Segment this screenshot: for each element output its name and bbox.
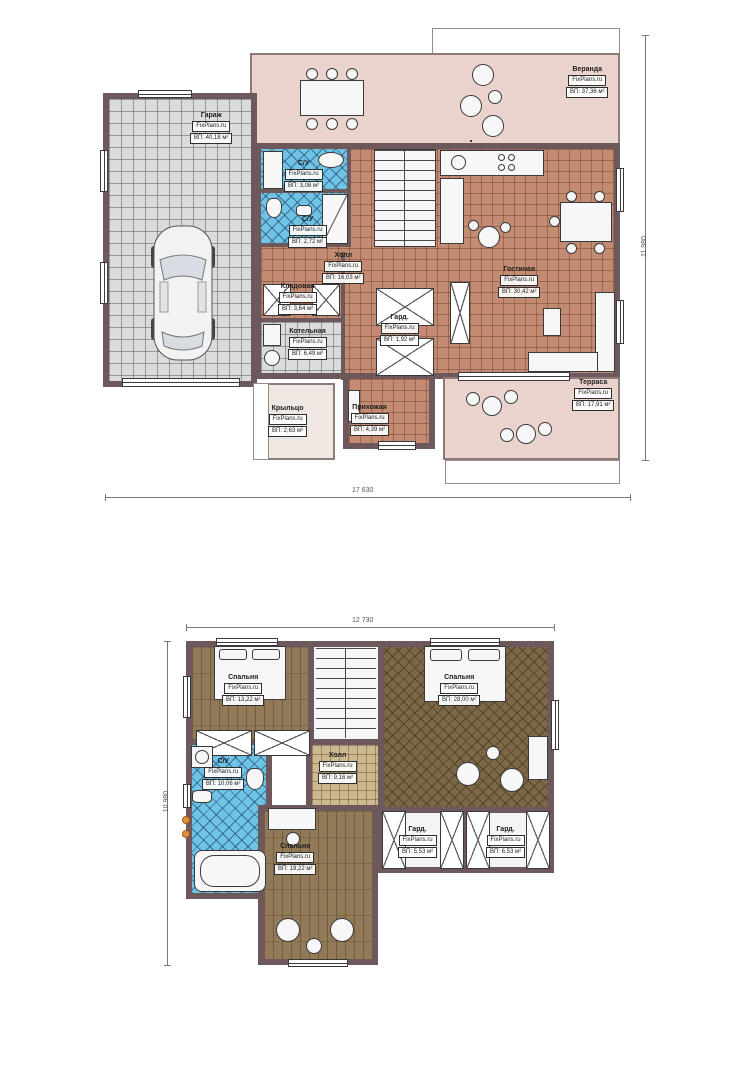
stairs-rail — [345, 648, 346, 738]
room-title: С/У — [302, 216, 313, 224]
lounge-chair-icon — [472, 64, 494, 86]
label-su-f2: С/У FixPlans.ru ВП: 10,06 м² — [202, 758, 244, 790]
brand-watermark: FixPlans.ru — [351, 413, 389, 424]
brand-watermark: FixPlans.ru — [487, 835, 525, 846]
dimension-tick — [186, 624, 187, 631]
chair-icon — [326, 68, 338, 80]
chair-icon — [538, 422, 552, 436]
wardrobe — [440, 811, 464, 869]
room-title: Спальня — [228, 674, 258, 682]
room-area: ВП: 16,03 м² — [322, 273, 364, 284]
stove-burner-icon — [498, 154, 505, 161]
armchair-icon — [330, 918, 354, 942]
brand-watermark: FixPlans.ru — [276, 852, 314, 863]
car-icon — [146, 222, 220, 364]
kitchen-sink-icon — [451, 155, 466, 170]
stove-burner-icon — [498, 164, 505, 171]
label-gard2-f2: Гард. FixPlans.ru ВП: 6,53 м² — [486, 826, 525, 858]
dimension-value-height-f2: 10 980 — [163, 791, 170, 812]
chair-icon — [594, 243, 605, 254]
label-prihozhaya: Прихожая FixPlans.ru ВП: 4,39 м² — [350, 404, 389, 436]
lounge-chair-icon — [460, 95, 482, 117]
pillow-icon — [252, 649, 280, 660]
pillow-icon — [468, 649, 500, 661]
dimension-tick — [164, 641, 171, 642]
dimension-tick — [554, 624, 555, 631]
room-title: Холл — [329, 752, 347, 760]
room-title: Крыльцо — [272, 405, 304, 413]
bedroom3-window-bottom — [288, 959, 348, 967]
room-title: Кладовая — [281, 283, 315, 291]
terrace-table — [482, 396, 502, 416]
veranda-glazed-door — [470, 140, 472, 142]
porch-steps — [253, 383, 269, 460]
label-gard1-f2: Гард. FixPlans.ru ВП: 5,53 м² — [398, 826, 437, 858]
bedroom1-window-left — [183, 676, 191, 718]
dimension-tick — [642, 35, 649, 36]
side-table — [306, 938, 322, 954]
room-area: ВП: 10,06 м² — [202, 779, 244, 790]
room-title: Прихожая — [352, 404, 387, 412]
brand-watermark: FixPlans.ru — [224, 683, 262, 694]
room-area: ВП: 6,49 м² — [288, 349, 327, 360]
room-area: ВП: 6,53 м² — [486, 847, 525, 858]
dimension-value-width-f1: 17 630 — [352, 487, 373, 494]
label-bedroom3: Спальня FixPlans.ru ВП: 19,22 м² — [274, 843, 316, 875]
label-hall-f2: Холл FixPlans.ru ВП: 9,16 м² — [318, 752, 357, 784]
coffee-table — [543, 308, 561, 336]
label-kryltso: Крыльцо FixPlans.ru ВП: 2,63 м² — [268, 405, 307, 437]
toilet-icon — [266, 198, 282, 218]
room-area: ВП: 30,42 м² — [498, 287, 540, 298]
room-title: Гостиная — [503, 266, 535, 274]
room-area: ВП: 13,22 м² — [222, 695, 264, 706]
chair-icon — [306, 68, 318, 80]
garage-door — [122, 378, 240, 387]
armchair-icon — [276, 918, 300, 942]
room-area: ВП: 28,00 м² — [438, 695, 480, 706]
room-area: ВП: 2,72 м² — [288, 237, 327, 248]
veranda-table — [300, 80, 364, 116]
brand-watermark: FixPlans.ru — [285, 169, 323, 180]
room-area: ВП: 2,63 м² — [268, 426, 307, 437]
pillow-icon — [219, 649, 247, 660]
armchair-icon — [500, 768, 524, 792]
fridge-icon — [440, 178, 464, 244]
chair-icon — [566, 243, 577, 254]
room-title: С/У — [298, 160, 309, 168]
room-title: Гард. — [408, 826, 426, 834]
brand-watermark: FixPlans.ru — [568, 75, 606, 86]
dimension-tick — [630, 494, 631, 501]
room-title: Гараж — [201, 112, 222, 120]
pillow-icon — [430, 649, 462, 661]
room-area: ВП: 5,53 м² — [398, 847, 437, 858]
lounge-chair-icon — [482, 115, 504, 137]
label-terrasa: Терраса FixPlans.ru ВП: 17,91 м² — [572, 379, 614, 411]
stairs — [374, 149, 436, 247]
dimension-value-height-f1: 11 980 — [641, 236, 648, 257]
garage-window-left-1 — [100, 150, 108, 192]
terrace-steps — [445, 460, 620, 484]
room-title: Спальня — [280, 843, 310, 851]
label-bedroom1: Спальня FixPlans.ru ВП: 13,22 м² — [222, 674, 264, 706]
dimension-line-width-f2 — [186, 627, 554, 628]
room-area: ВП: 37,36 м² — [566, 87, 608, 98]
chair-icon — [500, 222, 511, 233]
brand-watermark: FixPlans.ru — [574, 388, 612, 399]
brand-watermark: FixPlans.ru — [500, 275, 538, 286]
garage-window-left-2 — [100, 262, 108, 304]
chair-icon — [306, 118, 318, 130]
entry-door — [378, 441, 416, 450]
living-window-right-2 — [616, 300, 624, 344]
room-title: С/У — [218, 758, 229, 766]
label-gostinaya: Гостиная FixPlans.ru ВП: 30,42 м² — [498, 266, 540, 298]
desk — [268, 808, 316, 830]
brand-watermark: FixPlans.ru — [399, 835, 437, 846]
room-title: Холл — [334, 252, 352, 260]
chair-icon — [346, 118, 358, 130]
floor1-plan: Веранда FixPlans.ru ВП: 37,36 м² Гараж F… — [0, 0, 736, 540]
brand-watermark: FixPlans.ru — [204, 767, 242, 778]
terrace-table — [516, 424, 536, 444]
room-area: ВП: 19,22 м² — [274, 864, 316, 875]
bedroom2-window-top — [430, 638, 500, 646]
chair-icon — [346, 68, 358, 80]
toilet-icon — [246, 768, 264, 790]
sofa — [595, 292, 615, 372]
chair-icon — [500, 428, 514, 442]
chair-icon — [468, 220, 479, 231]
dimension-tick — [642, 460, 649, 461]
room-area: ВП: 4,39 м² — [350, 425, 389, 436]
brand-watermark: FixPlans.ru — [289, 337, 327, 348]
stove-burner-icon — [508, 154, 515, 161]
bedroom1-window-top — [216, 638, 278, 646]
room-area: ВП: 40,18 м² — [190, 133, 232, 144]
room-title: Терраса — [579, 379, 607, 387]
wall-light-icon — [182, 830, 190, 838]
chair-icon — [466, 392, 480, 406]
label-su2: С/У FixPlans.ru ВП: 2,72 м² — [288, 216, 327, 248]
room-area: ВП: 3,08 м² — [284, 181, 323, 192]
chair-icon — [549, 216, 560, 227]
room-title: Спальня — [444, 674, 474, 682]
dimension-line-width-f1 — [105, 497, 630, 498]
stairs — [316, 648, 376, 738]
chair-icon — [326, 118, 338, 130]
label-hall: Холл FixPlans.ru ВП: 16,03 м² — [322, 252, 364, 284]
sofa — [528, 352, 598, 372]
terrace-glazed-door — [458, 372, 570, 381]
room-title: Котельная — [289, 328, 326, 336]
garage-window-top — [138, 90, 192, 98]
boiler-tank-icon — [264, 350, 280, 366]
bathtub-basin-icon — [200, 855, 260, 887]
room-title: Веранда — [572, 66, 602, 74]
tv-cabinet — [450, 282, 470, 344]
floor2-plan: Спальня FixPlans.ru ВП: 13,22 м² Спальня… — [0, 540, 736, 1080]
brand-watermark: FixPlans.ru — [279, 292, 317, 303]
label-bedroom2: Спальня FixPlans.ru ВП: 28,00 м² — [438, 674, 480, 706]
dimension-tick — [105, 494, 106, 501]
room-area: ВП: 1,92 м² — [380, 335, 419, 346]
bathroom-window-left — [183, 784, 191, 808]
boiler-icon — [263, 324, 281, 346]
label-veranda: Веранда FixPlans.ru ВП: 37,36 м² — [566, 66, 608, 98]
veranda-steps — [432, 28, 620, 55]
room-title: Гард. — [496, 826, 514, 834]
label-kotelnaya: Котельная FixPlans.ru ВП: 6,49 м² — [288, 328, 327, 360]
room-area: ВП: 17,91 м² — [572, 400, 614, 411]
label-su1: С/У FixPlans.ru ВП: 3,08 м² — [284, 160, 323, 192]
chair-icon — [504, 390, 518, 404]
bedroom2-window-right — [551, 700, 559, 750]
brand-watermark: FixPlans.ru — [324, 261, 362, 272]
floor-plan-sheet: Веранда FixPlans.ru ВП: 37,36 м² Гараж F… — [0, 0, 736, 1080]
chair-icon — [566, 191, 577, 202]
brand-watermark: FixPlans.ru — [269, 414, 307, 425]
label-kladovaya: Кладовая FixPlans.ru ВП: 3,64 м² — [278, 283, 317, 315]
cabinet-icon — [263, 151, 283, 189]
brand-watermark: FixPlans.ru — [381, 323, 419, 334]
dimension-tick — [164, 965, 171, 966]
stairs-rail — [404, 150, 405, 246]
room-area: ВП: 9,16 м² — [318, 773, 357, 784]
armchair-icon — [456, 762, 480, 786]
brand-watermark: FixPlans.ru — [319, 761, 357, 772]
wardrobe — [526, 811, 550, 869]
chair-icon — [594, 191, 605, 202]
wardrobe — [254, 730, 310, 756]
dresser — [528, 736, 548, 780]
label-gard1: Гард. FixPlans.ru ВП: 1,92 м² — [380, 314, 419, 346]
room-title: Гард. — [390, 314, 408, 322]
dining-table — [560, 202, 612, 242]
dimension-value-width-f2: 12 730 — [352, 617, 373, 624]
room-area: ВП: 3,64 м² — [278, 304, 317, 315]
stove-burner-icon — [508, 164, 515, 171]
brand-watermark: FixPlans.ru — [289, 225, 327, 236]
brand-watermark: FixPlans.ru — [192, 121, 230, 132]
sink-icon — [192, 790, 212, 803]
sink-icon — [296, 205, 312, 216]
living-window-right-1 — [616, 168, 624, 212]
wall-light-icon — [182, 816, 190, 824]
label-garage: Гараж FixPlans.ru ВП: 40,18 м² — [190, 112, 232, 144]
veranda-side-table — [488, 90, 502, 104]
side-table — [486, 746, 500, 760]
brand-watermark: FixPlans.ru — [440, 683, 478, 694]
kitchen-table — [478, 226, 500, 248]
